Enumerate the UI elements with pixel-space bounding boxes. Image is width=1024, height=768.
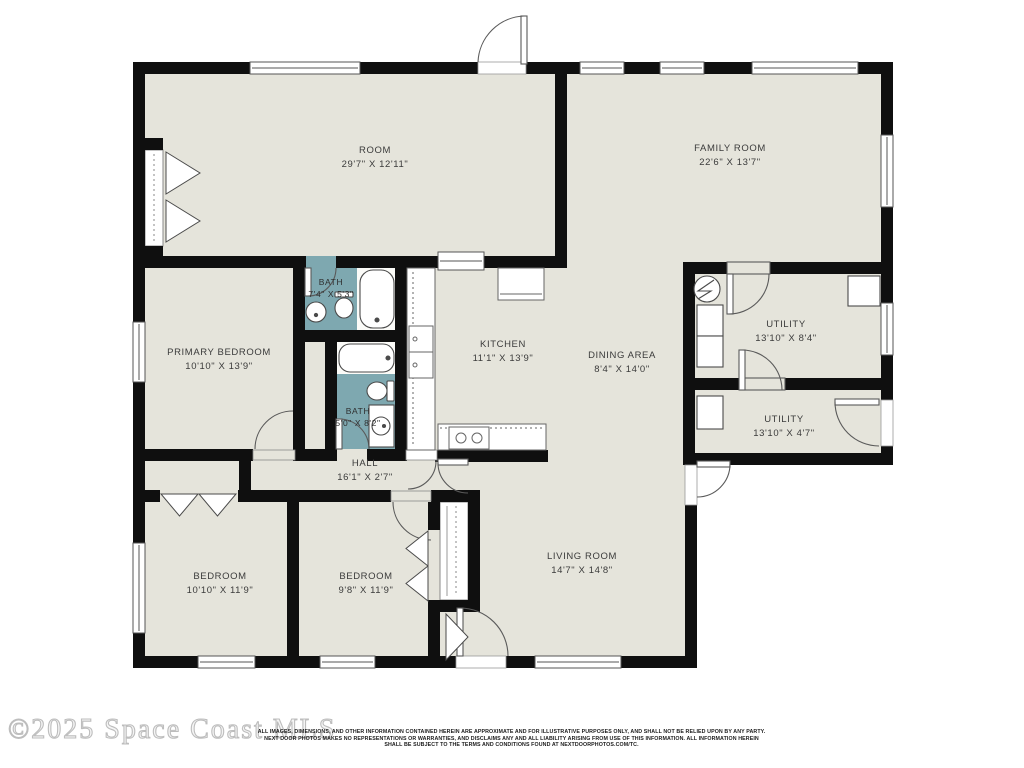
room-name: BEDROOM	[193, 571, 246, 582]
room-label-dining-area: DINING AREA 8'4" X 14'0"	[588, 349, 656, 377]
room-dims: 13'10" X 4'7"	[753, 427, 815, 441]
room-label-family-room: FAMILY ROOM 22'6" X 13'7"	[694, 142, 766, 170]
room-name: UTILITY	[766, 319, 806, 330]
room-dims: 8'4" X 14'0"	[588, 363, 656, 377]
window-icon	[133, 322, 145, 382]
utility-appliance-icon	[697, 396, 723, 429]
disclaimer-line: ALL IMAGES, DIMENSIONS, AND OTHER INFORM…	[253, 729, 770, 736]
room-dims: 10'10" X 11'9"	[187, 584, 254, 598]
floor-plan-drawing	[0, 0, 1024, 768]
washer-icon	[697, 305, 723, 336]
window-icon	[752, 62, 858, 74]
room-dims: 14'7" X 14'8"	[547, 564, 617, 578]
room-dims: 7'4" X 5'3"	[308, 288, 353, 300]
room-dims: 13'10" X 8'4"	[755, 332, 817, 346]
room-name: PRIMARY BEDROOM	[167, 347, 271, 358]
window-icon	[535, 656, 621, 668]
room-dims: 29'7" X 12'11"	[342, 158, 409, 172]
disclaimer-line: NEXT DOOR PHOTOS MAKES NO REPRESENTATION…	[253, 736, 770, 743]
window-icon	[250, 62, 360, 74]
room-label-kitchen: KITCHEN 11'1" X 13'9"	[473, 338, 534, 366]
window-icon	[881, 303, 893, 355]
room-label-utility-1: UTILITY 13'10" X 8'4"	[755, 318, 817, 346]
dryer-icon	[697, 336, 723, 367]
room-dims: 5'0" X 8'2"	[335, 417, 380, 429]
door-top-entry	[478, 16, 527, 74]
sink-icon	[306, 302, 326, 322]
room-name: ROOM	[359, 145, 391, 156]
room-dims: 16'1" X 2'7"	[337, 471, 393, 485]
room-name: BATH	[346, 406, 370, 416]
window-icon	[660, 62, 704, 74]
refrigerator-icon	[498, 268, 544, 300]
window-icon	[580, 62, 624, 74]
room-label-bath-1: BATH 7'4" X 5'3"	[308, 276, 353, 300]
window-icon	[320, 656, 375, 668]
room-label-bath-2: BATH 5'0" X 8'2"	[335, 405, 380, 429]
door-living-rear	[685, 461, 730, 505]
disclaimer-text: ALL IMAGES, DIMENSIONS, AND OTHER INFORM…	[253, 729, 770, 749]
room-dims: 9'8" X 11'9"	[339, 584, 394, 598]
room-label-utility-2: UTILITY 13'10" X 4'7"	[753, 413, 815, 441]
room-label-room: ROOM 29'7" X 12'11"	[342, 144, 409, 172]
kitchen-counter-left	[407, 268, 435, 450]
floor-plan-page: { "colors": { "floor": "#e5e4db", "bath"…	[0, 0, 1024, 768]
bathtub-icon	[360, 270, 394, 328]
window-icon	[198, 656, 255, 668]
stove-icon	[449, 427, 489, 449]
room-name: KITCHEN	[480, 339, 526, 350]
window-icon	[133, 543, 145, 633]
bathtub-icon	[339, 344, 394, 372]
kitchen-passthrough-window	[438, 252, 484, 270]
disclaimer-line: SHALL BE SUBJECT TO THE TERMS AND CONDIT…	[253, 742, 770, 749]
room-label-hall: HALL 16'1" X 2'7"	[337, 457, 393, 485]
room-dims: 22'6" X 13'7"	[694, 156, 766, 170]
room-name: LIVING ROOM	[547, 551, 617, 562]
window-icon	[881, 135, 893, 207]
room-name: BEDROOM	[339, 571, 392, 582]
room-name: FAMILY ROOM	[694, 143, 766, 154]
room-dims: 10'10" X 13'9"	[167, 360, 271, 374]
room-label-primary-bedroom: PRIMARY BEDROOM 10'10" X 13'9"	[167, 346, 271, 374]
room-name: DINING AREA	[588, 350, 656, 361]
room-label-bedroom-1: BEDROOM 10'10" X 11'9"	[187, 570, 254, 598]
freezer-icon	[848, 276, 880, 306]
toilet-icon	[367, 381, 394, 401]
room-label-living-room: LIVING ROOM 14'7" X 14'8"	[547, 550, 617, 578]
room-name: UTILITY	[764, 414, 804, 425]
room-name: HALL	[352, 458, 378, 469]
room-dims: 11'1" X 13'9"	[473, 352, 534, 366]
water-heater-icon	[694, 276, 720, 302]
room-name: BATH	[319, 277, 343, 287]
room-label-bedroom-2: BEDROOM 9'8" X 11'9"	[339, 570, 394, 598]
